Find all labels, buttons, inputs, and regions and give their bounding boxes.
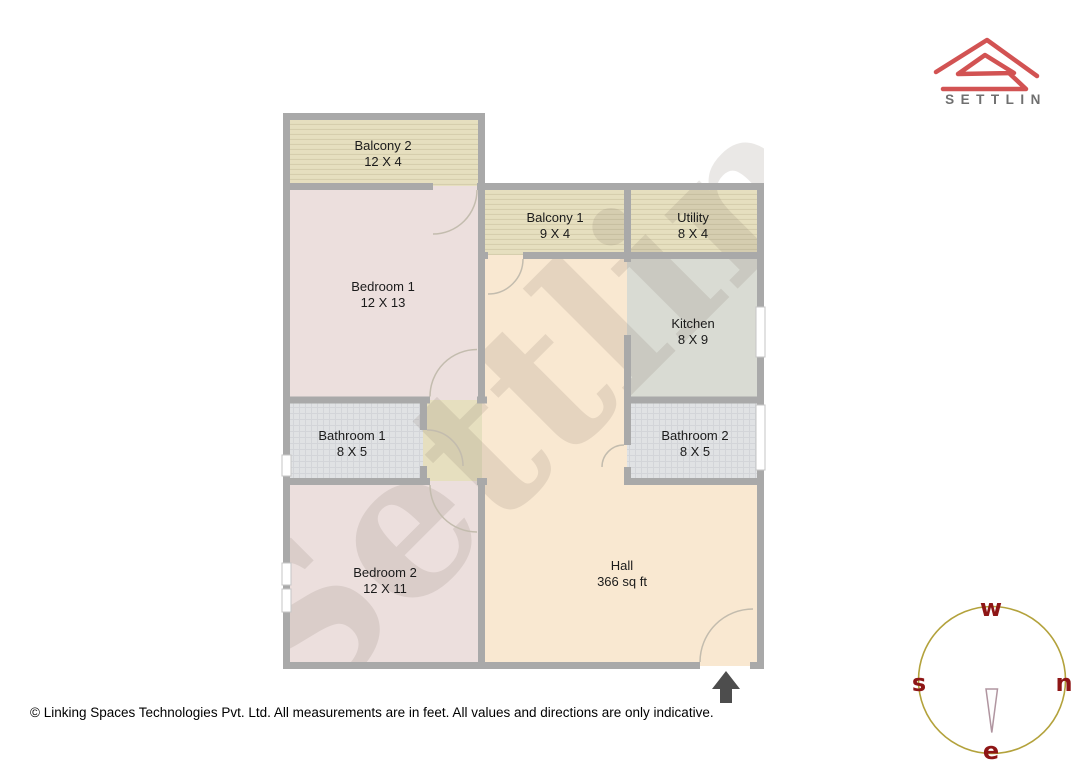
label-bedroom-1-dims: 12 X 13 (361, 295, 406, 310)
compass-right: n (1055, 669, 1072, 697)
label-bathroom-2-dims: 8 X 5 (680, 444, 710, 459)
label-balcony-2-name: Balcony 2 (354, 138, 411, 153)
window-kitchen (756, 307, 765, 357)
compass-top: w (980, 594, 1002, 622)
label-bathroom-1-name: Bathroom 1 (318, 428, 385, 443)
label-bathroom-2-name: Bathroom 2 (661, 428, 728, 443)
window-bedroom2-a (282, 563, 291, 585)
compass-left: s (912, 669, 926, 697)
label-bathroom-1-dims: 8 X 5 (337, 444, 367, 459)
compass-bottom: e (983, 737, 999, 764)
floor-plan-page: Settlin Balcon (0, 0, 1080, 764)
label-kitchen-name: Kitchen (671, 316, 714, 331)
window-bathroom1 (282, 455, 291, 476)
window-bedroom2-b (282, 589, 291, 612)
label-hall-dims: 366 sq ft (597, 574, 647, 589)
label-bedroom-1-name: Bedroom 1 (351, 279, 415, 294)
label-balcony-1-name: Balcony 1 (526, 210, 583, 225)
floor-plan-canvas: Settlin Balcon (0, 0, 1080, 764)
compass: w s n e (912, 594, 1073, 764)
label-hall-name: Hall (611, 558, 634, 573)
label-bedroom-2-name: Bedroom 2 (353, 565, 417, 580)
compass-needle-icon (986, 689, 998, 733)
label-balcony-1-dims: 9 X 4 (540, 226, 570, 241)
brand-logo: SETTLIN (936, 40, 1047, 107)
label-balcony-2-dims: 12 X 4 (364, 154, 402, 169)
entrance-arrow-icon (712, 671, 740, 703)
label-utility-dims: 8 X 4 (678, 226, 708, 241)
label-bedroom-2-dims: 12 X 11 (363, 581, 407, 596)
compass-letters: w s n e (912, 594, 1073, 764)
label-utility-name: Utility (677, 210, 709, 225)
roof-logo-icon (936, 40, 1037, 89)
label-kitchen-dims: 8 X 9 (678, 332, 708, 347)
brand-name: SETTLIN (945, 92, 1047, 107)
footer-disclaimer: © Linking Spaces Technologies Pvt. Ltd. … (30, 705, 714, 720)
window-bathroom2 (756, 405, 765, 470)
